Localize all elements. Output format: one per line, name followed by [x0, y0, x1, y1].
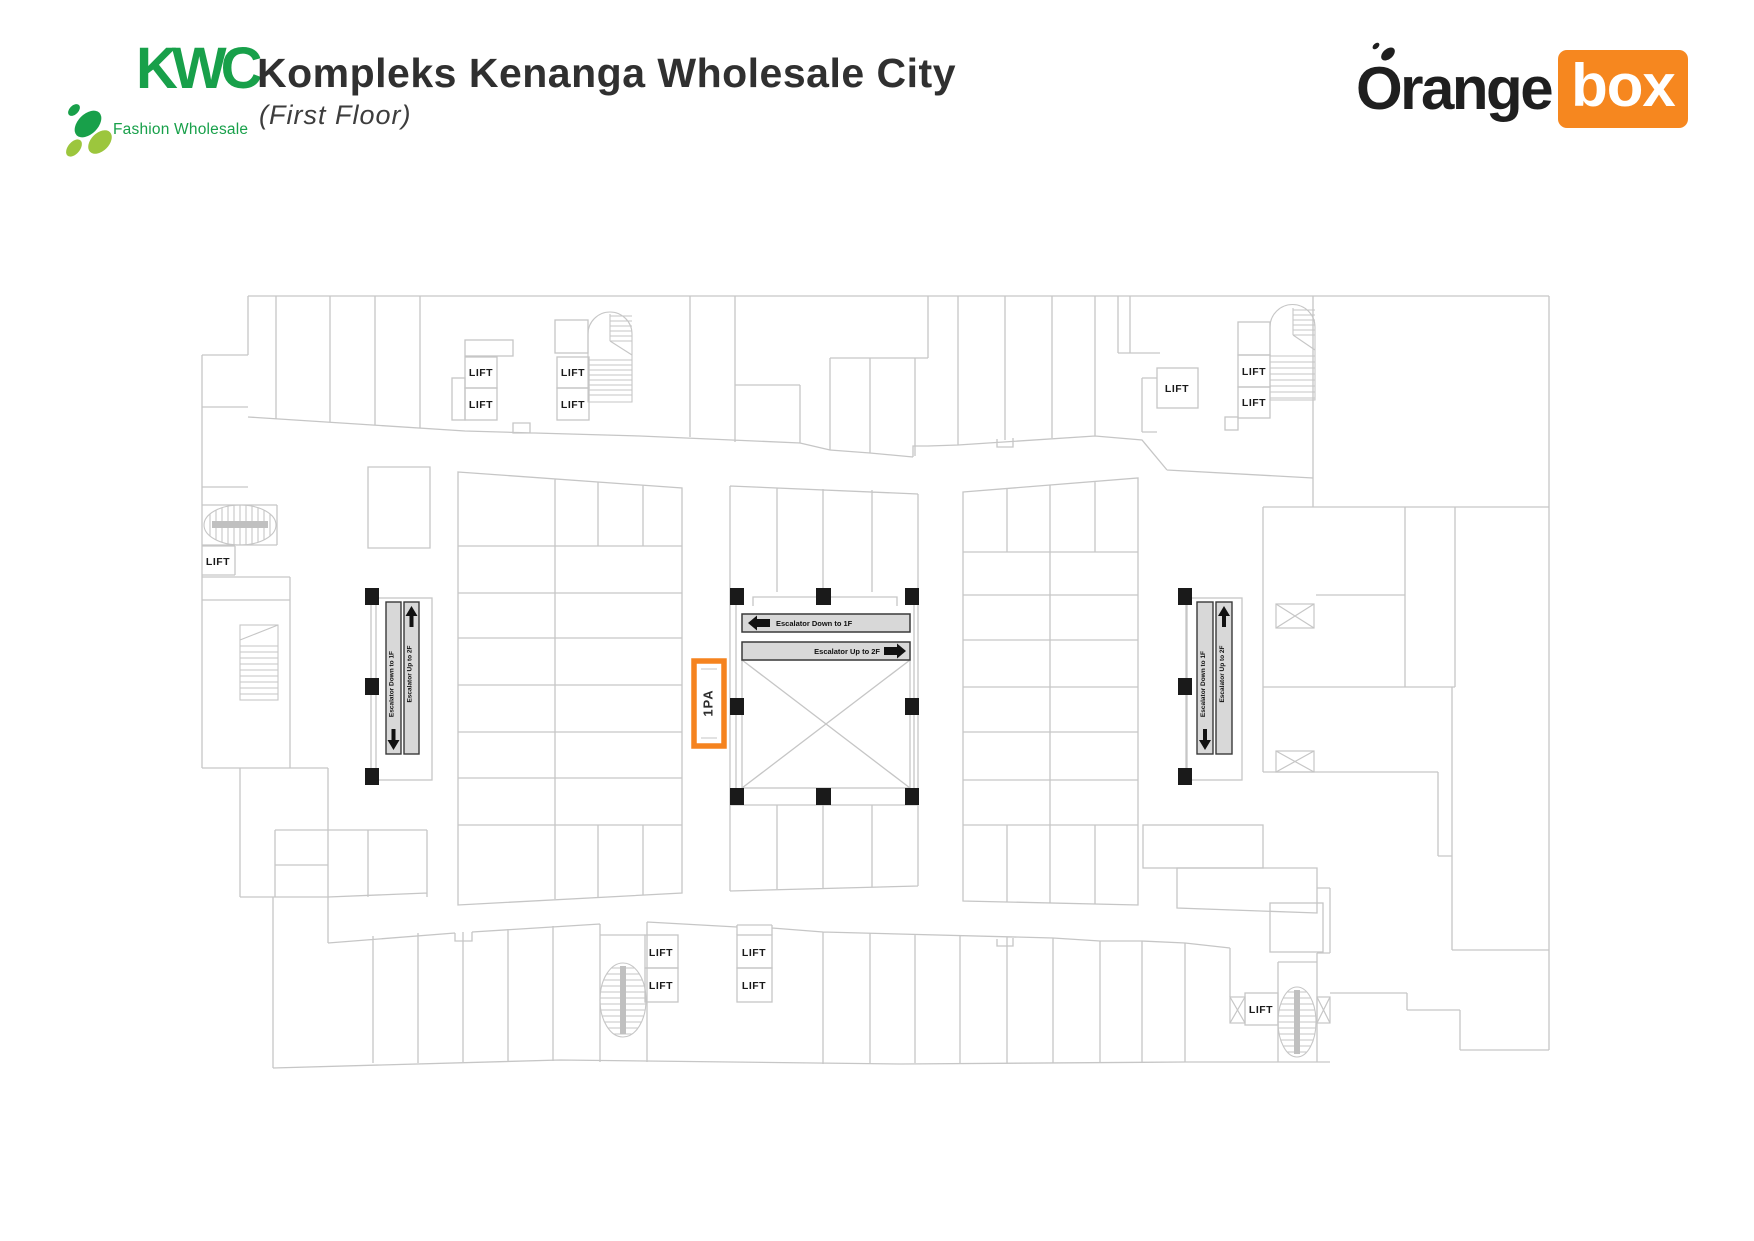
lift-label: LIFT: [1249, 1004, 1273, 1016]
lift-label: LIFT: [742, 947, 766, 959]
vent-shaft: [1276, 751, 1314, 772]
vent-shaft: [1276, 604, 1314, 628]
escalator-left: Escalator Down to 1F Escalator Up to 2F: [386, 602, 419, 754]
floor-plan: Escalator Down to 1F Escalator Up to 2F …: [0, 0, 1754, 1241]
vent-shaft: [1230, 997, 1245, 1023]
lift-label: LIFT: [1242, 366, 1266, 378]
escalator-up-label: Escalator Up to 2F: [814, 647, 880, 656]
highlighted-unit-1pa[interactable]: 1PA: [694, 661, 724, 746]
escalator-down-label: Escalator Down to 1F: [776, 619, 853, 628]
spiral-staircase: [588, 312, 632, 402]
oval-stairwell: [1278, 987, 1316, 1057]
atrium-void-cross: [742, 660, 910, 788]
lift-label: LIFT: [561, 399, 585, 411]
lift-label: LIFT: [561, 367, 585, 379]
lift-label: LIFT: [206, 556, 230, 568]
unit-label: 1PA: [700, 689, 715, 716]
vent-shafts: [1230, 604, 1330, 1023]
lift-label: LIFT: [1165, 383, 1189, 395]
escalator-right: Escalator Down to 1F Escalator Up to 2F: [1197, 602, 1232, 754]
spiral-staircase: [1270, 305, 1315, 401]
staircase: [240, 625, 278, 700]
escalator-down-label: Escalator Down to 1F: [389, 651, 396, 717]
page: KWC Fashion Wholesale Kompleks Kenanga W…: [0, 0, 1754, 1241]
escalator-up-label: Escalator Up to 2F: [1219, 645, 1226, 702]
oval-stairwell: [204, 505, 276, 545]
lift-label: LIFT: [742, 980, 766, 992]
lift-label: LIFT: [469, 367, 493, 379]
vent-shaft: [1317, 997, 1330, 1023]
lift-label: LIFT: [1242, 397, 1266, 409]
lift-label: LIFT: [649, 980, 673, 992]
escalator-down-label: Escalator Down to 1F: [1200, 651, 1207, 717]
oval-stairwell: [600, 963, 646, 1037]
lift-label: LIFT: [469, 399, 493, 411]
escalator-center: Escalator Down to 1F Escalator Up to 2F: [742, 614, 910, 660]
lift-rooms: [452, 320, 1323, 1025]
lift-label: LIFT: [649, 947, 673, 959]
escalator-up-label: Escalator Up to 2F: [407, 645, 414, 702]
